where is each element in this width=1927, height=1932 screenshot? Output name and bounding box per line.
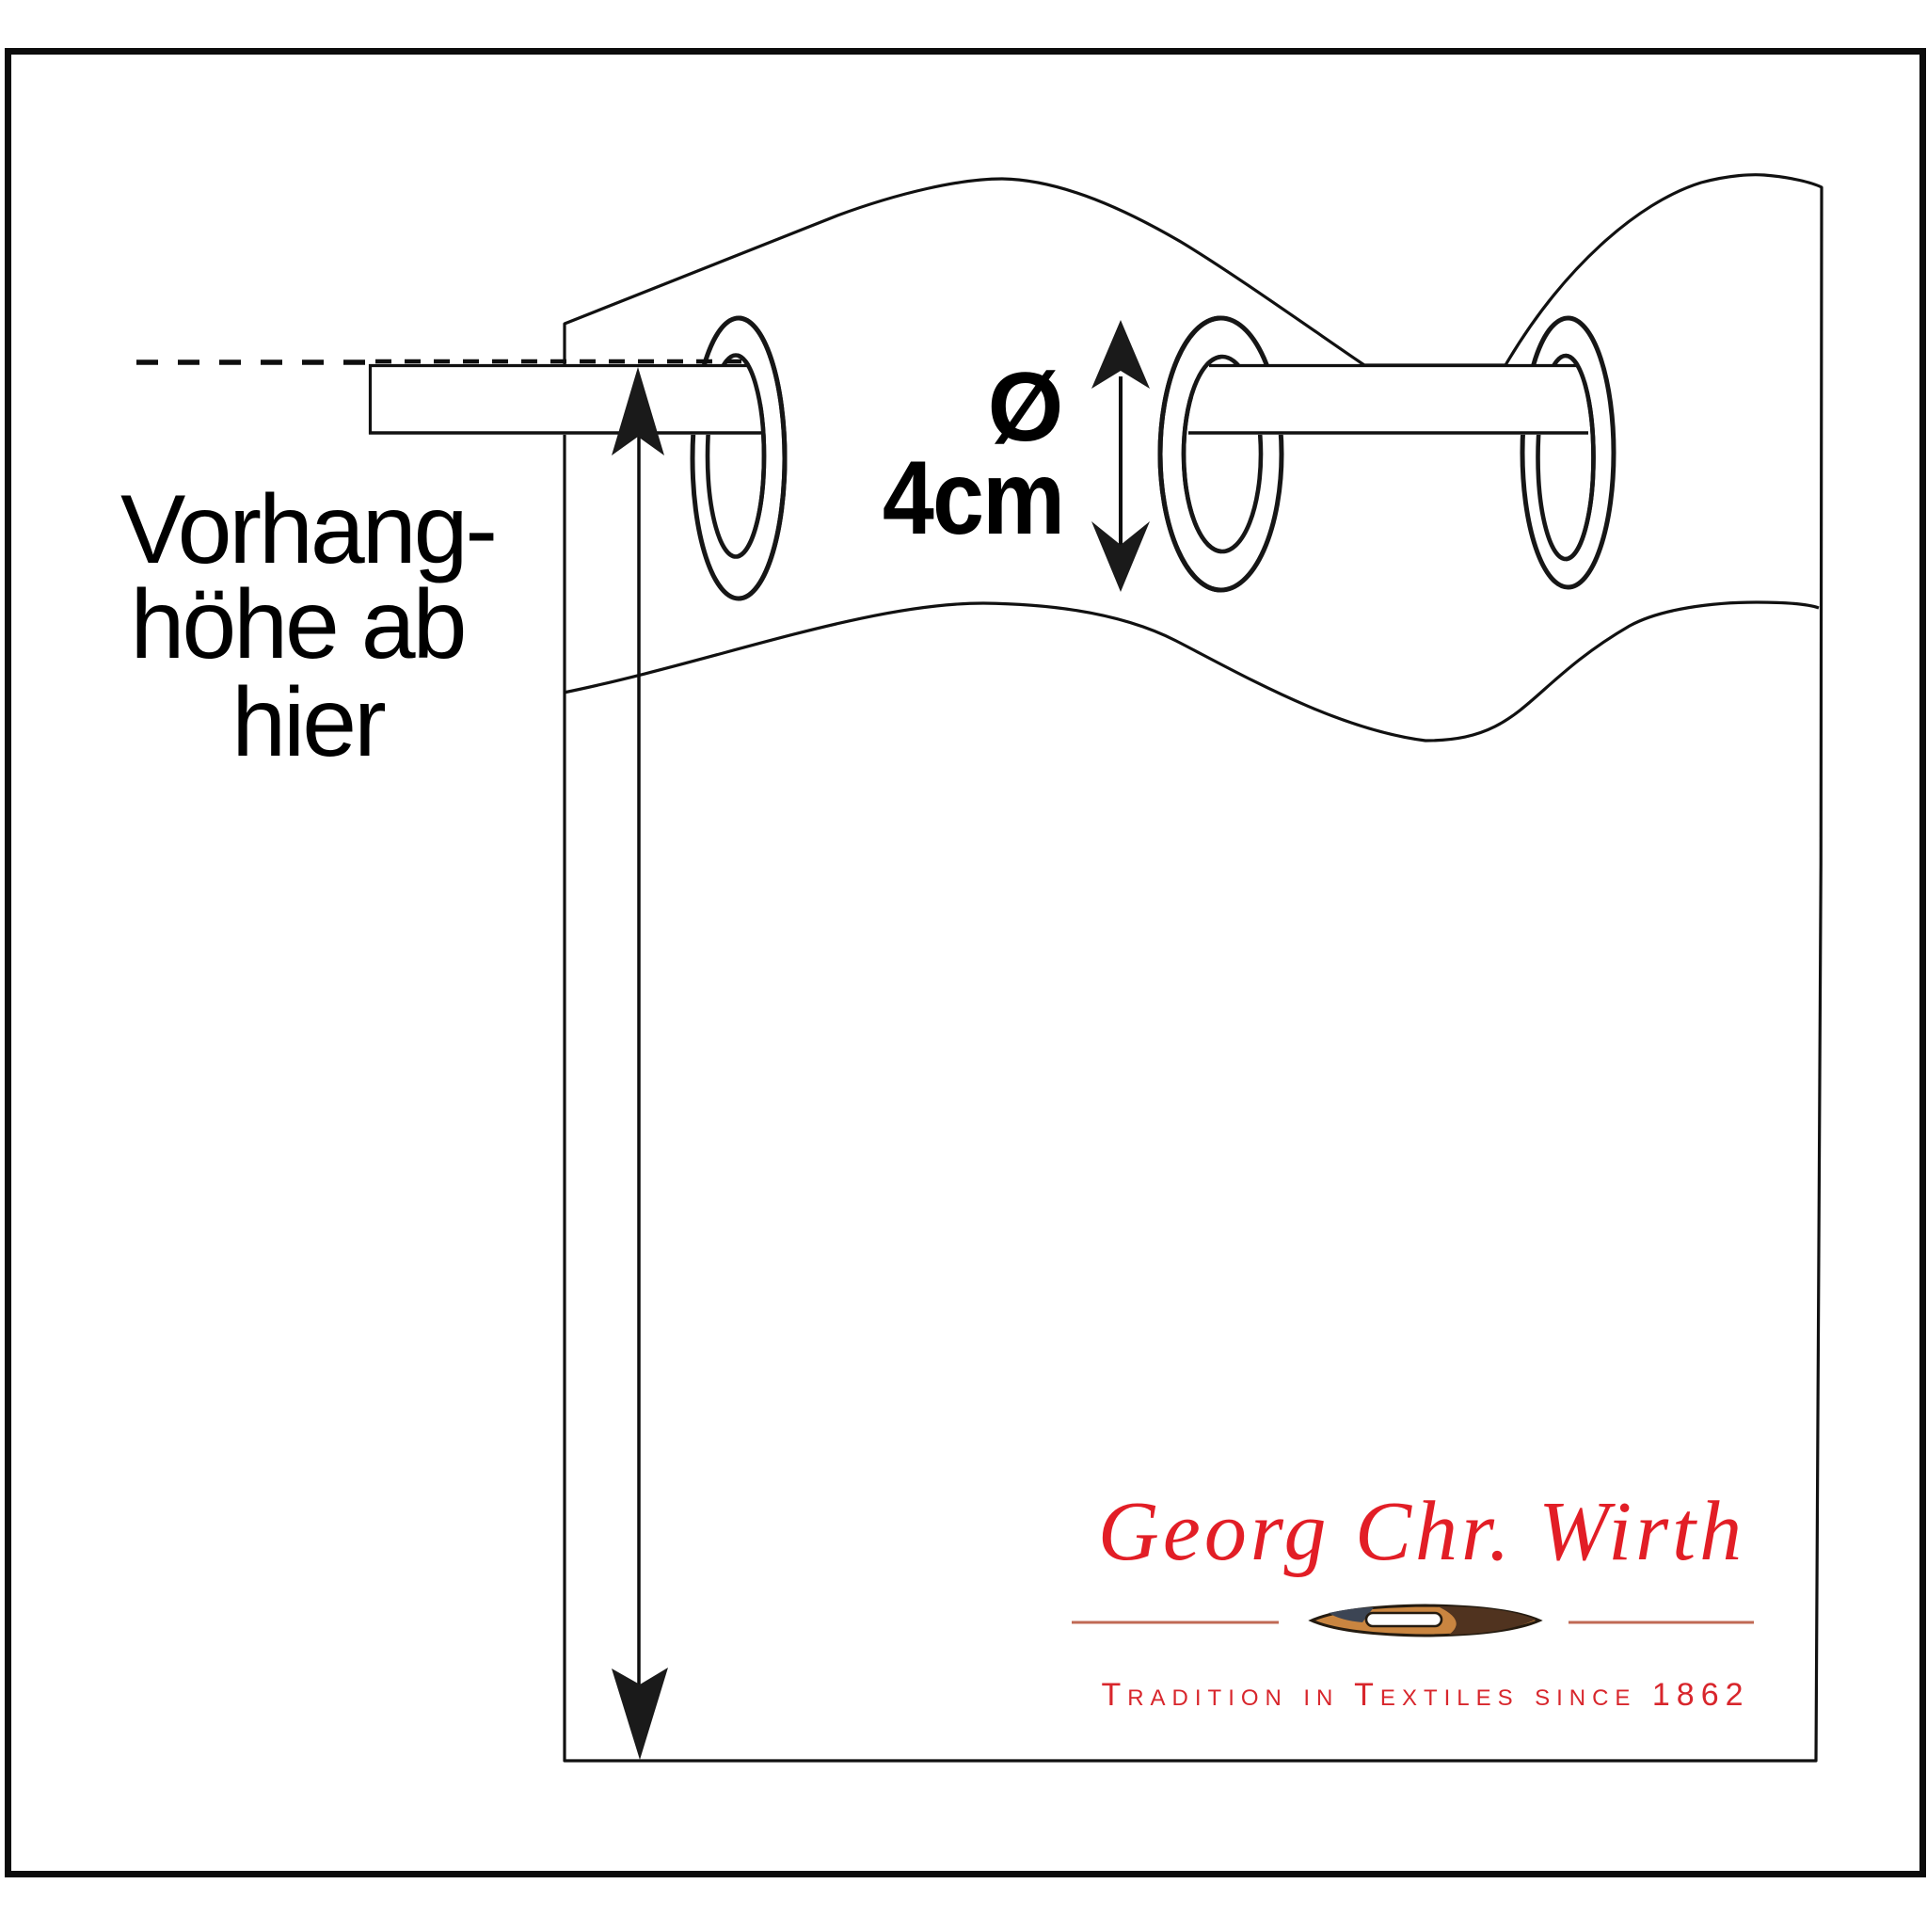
svg-text:Georg Chr. Wirth: Georg Chr. Wirth [1098,1485,1745,1578]
svg-text:Tradition in Textiles since 18: Tradition in Textiles since 1862 [1101,1677,1749,1713]
svg-text:4cm: 4cm [883,440,1063,557]
svg-text:Vorhang-: Vorhang- [120,475,495,584]
svg-text:höhe ab: höhe ab [131,570,465,679]
svg-text:hier: hier [231,668,385,777]
